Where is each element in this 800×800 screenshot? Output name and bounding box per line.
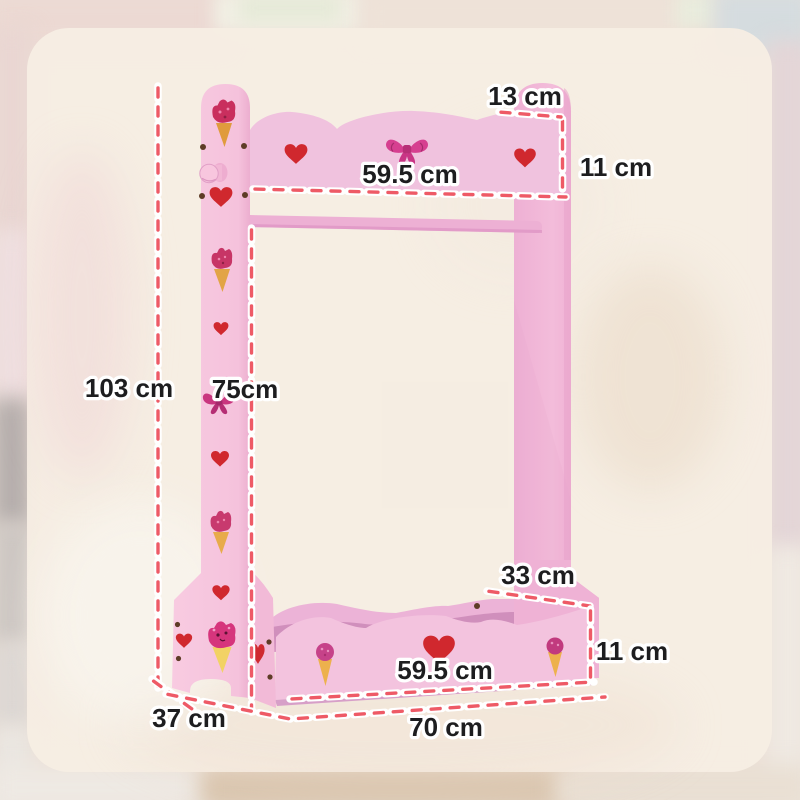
svg-text:11 cm: 11 cm	[596, 636, 668, 666]
svg-text:75cm: 75cm	[212, 374, 279, 404]
svg-text:13 cm: 13 cm	[488, 81, 562, 111]
svg-text:11 cm: 11 cm	[580, 152, 652, 182]
svg-text:70 cm: 70 cm	[409, 712, 483, 742]
svg-text:59.5 cm: 59.5 cm	[397, 655, 492, 685]
svg-text:103 cm: 103 cm	[85, 373, 173, 403]
svg-text:37 cm: 37 cm	[152, 703, 226, 733]
svg-text:59.5 cm: 59.5 cm	[362, 159, 457, 189]
svg-text:33 cm: 33 cm	[501, 560, 575, 590]
